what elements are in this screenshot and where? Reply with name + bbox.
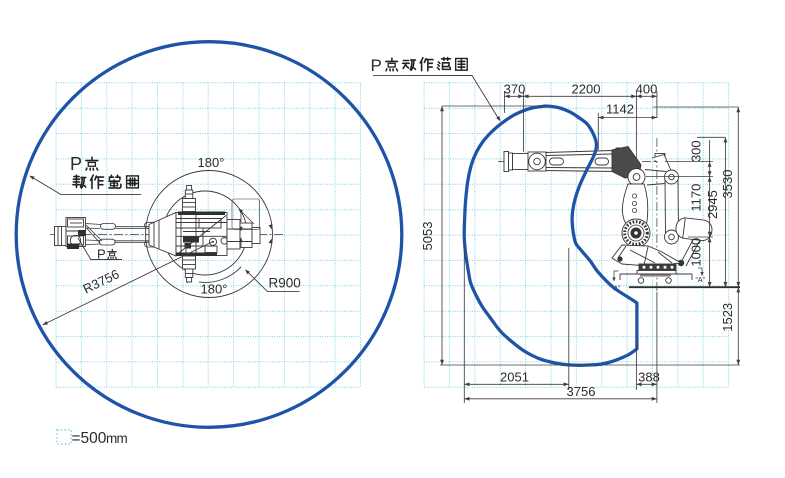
svg-text:180°: 180° [201,282,228,297]
svg-text:1142: 1142 [606,102,634,117]
svg-text:“A”: “A” [696,277,706,284]
svg-text:2051: 2051 [500,370,529,385]
svg-text:1170: 1170 [689,184,704,212]
svg-text:5053: 5053 [420,222,435,251]
svg-text:3756: 3756 [567,384,596,399]
svg-text:1523: 1523 [720,303,735,332]
svg-text:370: 370 [504,82,526,97]
svg-text:300: 300 [689,140,704,162]
svg-text:2945: 2945 [705,190,720,219]
svg-text:P: P [371,56,382,75]
svg-text:388: 388 [638,370,660,385]
svg-text:1000: 1000 [689,238,704,267]
svg-text:R900: R900 [269,276,301,291]
svg-text:180°: 180° [198,155,225,170]
svg-text:2200: 2200 [572,82,601,97]
svg-text:400: 400 [636,82,658,97]
svg-text:P: P [70,154,82,174]
svg-text:mm: mm [106,431,127,446]
svg-text:3530: 3530 [720,170,735,199]
svg-text:P: P [97,247,106,262]
svg-text:=500: =500 [72,430,107,447]
